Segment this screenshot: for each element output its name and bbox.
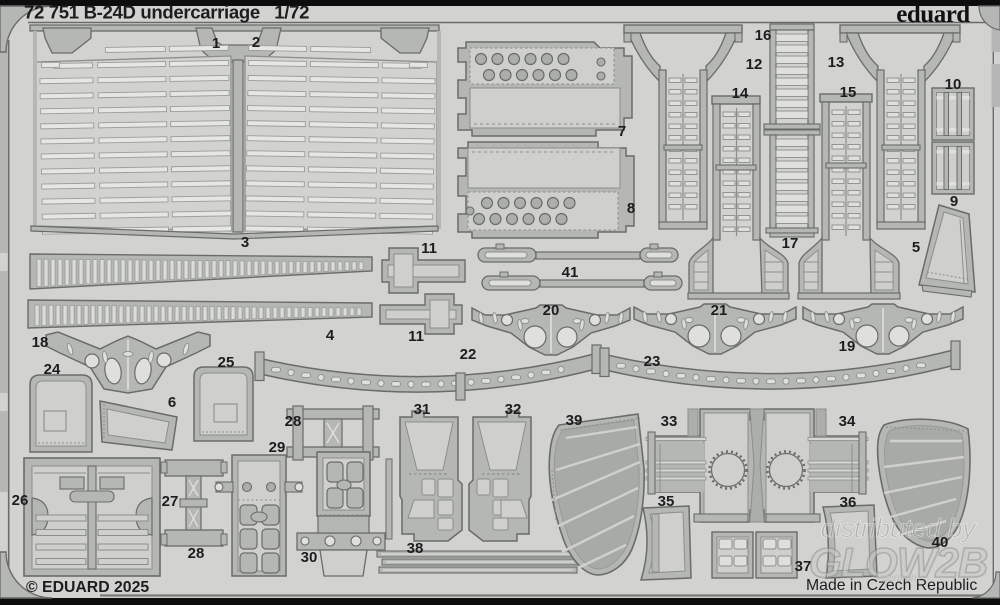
svg-text:germany: germany [883, 573, 923, 584]
svg-text:25: 25 [218, 354, 235, 371]
svg-text:28: 28 [285, 413, 302, 430]
svg-text:8: 8 [627, 200, 635, 217]
svg-text:11: 11 [421, 240, 437, 257]
svg-text:13: 13 [828, 54, 845, 71]
svg-text:27: 27 [162, 493, 179, 510]
svg-text:11: 11 [408, 328, 424, 345]
svg-text:4: 4 [326, 327, 335, 344]
svg-text:10: 10 [945, 76, 962, 93]
svg-text:2: 2 [252, 34, 260, 51]
svg-text:31: 31 [414, 401, 431, 418]
svg-text:20: 20 [543, 302, 560, 319]
svg-text:14: 14 [732, 85, 749, 102]
svg-text:34: 34 [839, 413, 856, 430]
svg-text:23: 23 [644, 353, 661, 370]
svg-text:32: 32 [505, 401, 522, 418]
svg-text:35: 35 [658, 493, 675, 510]
svg-text:7: 7 [618, 123, 626, 140]
svg-text:5: 5 [912, 239, 920, 256]
svg-text:37: 37 [795, 558, 812, 575]
svg-text:16: 16 [755, 27, 772, 44]
svg-text:1: 1 [212, 35, 220, 52]
svg-text:22: 22 [460, 346, 477, 363]
svg-text:36: 36 [840, 494, 857, 511]
svg-text:© EDUARD 2025: © EDUARD 2025 [26, 579, 149, 596]
svg-text:6: 6 [168, 394, 176, 411]
svg-text:41: 41 [562, 264, 579, 281]
svg-text:72 751 B-24D undercarriage 1: 72 751 B-24D undercarriage 1/72 [24, 2, 309, 23]
svg-text:24: 24 [44, 361, 61, 378]
svg-text:17: 17 [782, 235, 799, 252]
svg-text:40: 40 [932, 534, 949, 551]
svg-text:38: 38 [407, 540, 424, 557]
svg-text:15: 15 [840, 84, 857, 101]
svg-text:26: 26 [12, 492, 29, 509]
svg-text:18: 18 [32, 334, 49, 351]
svg-text:28: 28 [188, 545, 205, 562]
svg-text:eduard: eduard [896, 1, 970, 28]
svg-text:3: 3 [241, 234, 249, 251]
svg-text:33: 33 [661, 413, 678, 430]
svg-text:30: 30 [301, 549, 318, 566]
svg-text:29: 29 [269, 439, 286, 456]
svg-text:21: 21 [711, 302, 728, 319]
svg-text:19: 19 [839, 338, 856, 355]
svg-text:12: 12 [746, 56, 763, 73]
svg-text:9: 9 [950, 193, 958, 210]
svg-text:39: 39 [566, 412, 583, 429]
